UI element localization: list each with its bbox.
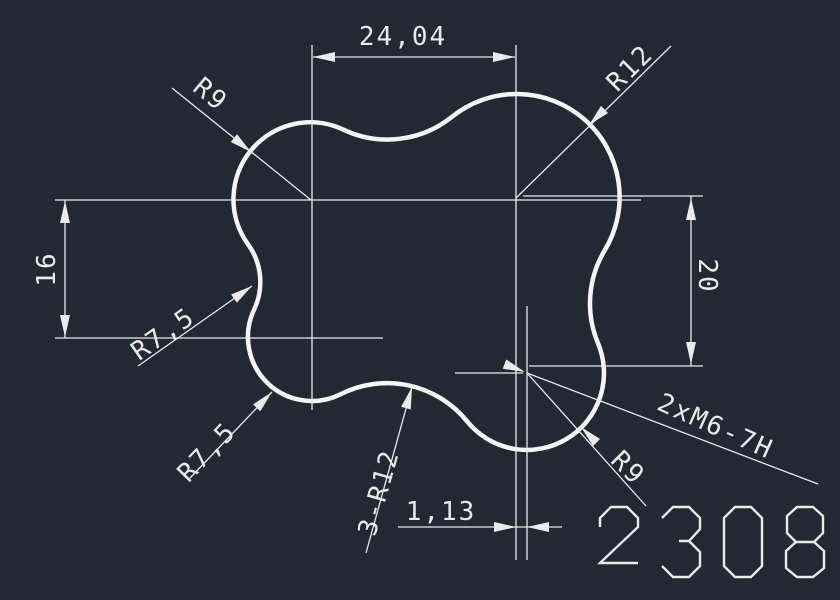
arrowhead-r75-left (231, 282, 255, 303)
arrowhead-offset-right (527, 522, 549, 532)
arrowhead-offset-left (494, 522, 516, 532)
dim-height20-text: 20 (692, 258, 722, 293)
dim-width-text: 24,04 (359, 22, 447, 52)
arrowhead-width-left (313, 52, 335, 62)
radius-bottom-left-text: R7,5 (172, 417, 243, 489)
radius-top-left-text: R9 (187, 72, 233, 118)
radius-bottom-right-text: R9 (605, 445, 651, 491)
dim-offset-text: 1,13 (406, 497, 477, 527)
arrowhead-16-top (60, 201, 70, 223)
arrowhead-16-bottom (60, 315, 70, 337)
radius-left-text: R7,5 (126, 302, 201, 367)
arrowhead-3r12 (401, 386, 417, 410)
radius-bottom-text: 3-R12 (353, 446, 406, 539)
cad-drawing-area[interactable]: 24,04 16 20 1,13 R9 R12 R7,5 R7,5 3-R12 … (0, 0, 840, 600)
arrowhead-width-right (493, 52, 515, 62)
part-number (600, 507, 824, 577)
cad-canvas[interactable]: 24,04 16 20 1,13 R9 R12 R7,5 R7,5 3-R12 … (0, 0, 840, 600)
part-number-digit (786, 507, 824, 577)
leader-thread-callout (527, 373, 818, 484)
thread-callout-text: 2xM6-7H (653, 388, 778, 466)
part-number-digit (662, 507, 700, 577)
radius-top-right-text: R12 (601, 39, 660, 98)
arrowhead-20-top (686, 198, 696, 220)
dim-height16-text: 16 (32, 251, 62, 286)
arrowhead-20-bottom (686, 342, 696, 364)
part-number-digit (724, 507, 762, 577)
part-outline (233, 94, 619, 450)
part-number-digit (600, 507, 638, 563)
arrowhead-thread-callout (503, 359, 527, 376)
